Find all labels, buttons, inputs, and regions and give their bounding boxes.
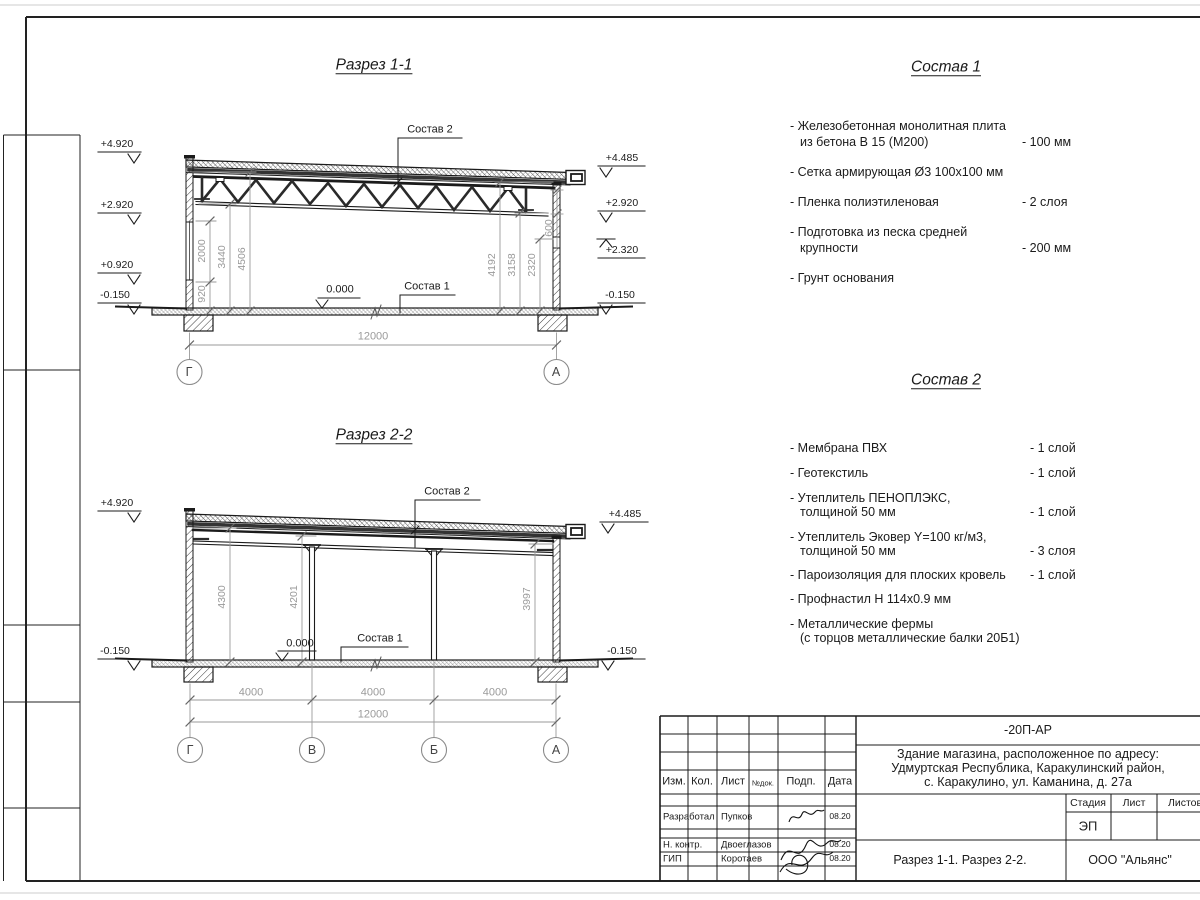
dim-total-label: 12000 [358, 332, 389, 343]
elevation-label: -0.150 [100, 646, 130, 657]
sostav2-title: Состав 2 [911, 372, 981, 388]
dim-label: 4300 [217, 585, 228, 608]
list-item-value: - 100 мм [1022, 136, 1071, 149]
list-item-value: - 3 слоя [1030, 545, 1075, 558]
elevation-label: +2.920 [101, 200, 133, 211]
elevation-label: -0.150 [605, 290, 635, 301]
elevation-label: +4.920 [101, 139, 133, 150]
list-item-value: - 1 слой [1030, 442, 1076, 455]
list-item: - Сетка армирующая Ø3 100x100 мм [790, 166, 1003, 179]
dim-label: 920 [197, 285, 208, 303]
sheet-header: Лист [1123, 798, 1146, 809]
list-item: - Геотекстиль [790, 467, 868, 480]
col-header: Лист [721, 777, 745, 788]
dim-label: 4506 [237, 247, 248, 270]
list-item-value: - 1 слой [1030, 569, 1076, 582]
list-item: крупности [800, 242, 858, 255]
sostav1-title: Состав 1 [911, 59, 981, 75]
project-address-line: с. Каракулино, ул. Каманина, д. 27а [924, 776, 1132, 789]
elevation-label: +2.320 [606, 245, 638, 256]
role-label: Н. контр. [663, 840, 702, 850]
grid-axis-label: Б [430, 744, 438, 757]
project-address-line: Удмуртская Республика, Каракулинский рай… [891, 762, 1165, 775]
list-item: толщиной 50 мм [800, 506, 896, 519]
list-item: - Утеплитель ПЕНОПЛЭКС, [790, 492, 950, 505]
grid-axis-label: А [552, 744, 560, 757]
list-item: - Железобетонная монолитная плита [790, 120, 1006, 133]
list-item-value: - 1 слой [1030, 467, 1076, 480]
sheets-header: Листов [1168, 798, 1200, 809]
col-header: Кол. [691, 777, 713, 788]
dim-label: 3997 [522, 587, 533, 610]
project-address-line: Здание магазина, расположенное по адресу… [897, 748, 1159, 761]
company-name: ООО "Альянс" [1088, 854, 1172, 867]
list-item-value: - 2 слоя [1022, 196, 1067, 209]
list-item: - Мембрана ПВХ [790, 442, 887, 455]
elevation-label: +2.920 [606, 198, 638, 209]
elevation-label: +4.485 [606, 153, 638, 164]
list-item: - Профнастил Н 114х0.9 мм [790, 593, 951, 606]
elevation-label: +4.920 [101, 498, 133, 509]
dim-total-label: 12000 [358, 710, 389, 721]
col-header: Подп. [786, 777, 815, 788]
person-name: Пупков [721, 812, 752, 822]
section-1-1-title: Разрез 1-1 [336, 57, 413, 73]
date-value: 08.20 [829, 840, 850, 849]
grid-axis-label: А [552, 366, 560, 379]
sostav1-callout: Состав 1 [357, 634, 403, 645]
list-item: - Грунт основания [790, 272, 894, 285]
person-name: Двоеглазов [721, 840, 772, 850]
dim-label: 3440 [217, 245, 228, 268]
dim-label: 2000 [197, 239, 208, 262]
stage-header: Стадия [1070, 798, 1106, 809]
dim-label: 4192 [487, 253, 498, 276]
list-item: - Пленка полиэтиленовая [790, 196, 939, 209]
doc-number: -20П-АР [1004, 724, 1052, 737]
person-name: Коротаев [721, 854, 762, 864]
dim-label: 4000 [239, 688, 263, 699]
sostav2-callout: Состав 2 [407, 125, 453, 136]
dim-label: 4000 [361, 688, 385, 699]
dim-label: 2320 [527, 253, 538, 276]
col-header: №док. [752, 779, 774, 787]
elevation-label: -0.150 [607, 646, 637, 657]
grid-axis-label: В [308, 744, 316, 757]
elevation-label: +0.920 [101, 260, 133, 271]
list-item: толщиной 50 мм [800, 545, 896, 558]
list-item: - Пароизоляция для плоских кровель [790, 569, 1006, 582]
list-item-value: - 200 мм [1022, 242, 1071, 255]
dim-label: 4000 [483, 688, 507, 699]
stage-value: ЭП [1079, 820, 1098, 833]
grid-axis-label: Г [186, 366, 193, 379]
list-item: (с торцов металлические балки 20Б1) [800, 632, 1020, 645]
role-label: ГИП [663, 854, 682, 864]
sostav2-callout: Состав 2 [424, 487, 470, 498]
sheet-title: Разрез 1-1. Разрез 2-2. [893, 854, 1026, 867]
zero-level-label: 0.000 [326, 285, 354, 296]
dim-label: 4201 [289, 585, 300, 608]
list-item: из бетона В 15 (М200) [800, 136, 928, 149]
grid-axis-label: Г [187, 744, 194, 757]
list-item-value: - 1 слой [1030, 506, 1076, 519]
col-header: Изм. [662, 777, 686, 788]
sostav1-callout: Состав 1 [404, 282, 450, 293]
col-header: Дата [828, 777, 852, 788]
dim-label: 600 [544, 219, 555, 237]
zero-level-label: 0.000 [286, 639, 314, 650]
dim-label: 3158 [507, 253, 518, 276]
section-1-1-linework [98, 138, 645, 385]
list-item: - Металлические фермы [790, 618, 933, 631]
date-value: 08.20 [829, 812, 850, 821]
drawing-sheet: Разрез 1-1 +4.920 +2.920 +0.920 -0.150 +… [0, 0, 1200, 900]
section-2-2-linework [98, 500, 648, 763]
elevation-label: +4.485 [609, 509, 641, 520]
role-label: Разработал [663, 812, 715, 822]
list-item: - Утеплитель Эковер Y=100 кг/м3, [790, 531, 986, 544]
date-value: 08.20 [829, 854, 850, 863]
section-2-2-title: Разрез 2-2 [336, 427, 413, 443]
list-item: - Подготовка из песка средней [790, 226, 967, 239]
elevation-label: -0.150 [100, 290, 130, 301]
